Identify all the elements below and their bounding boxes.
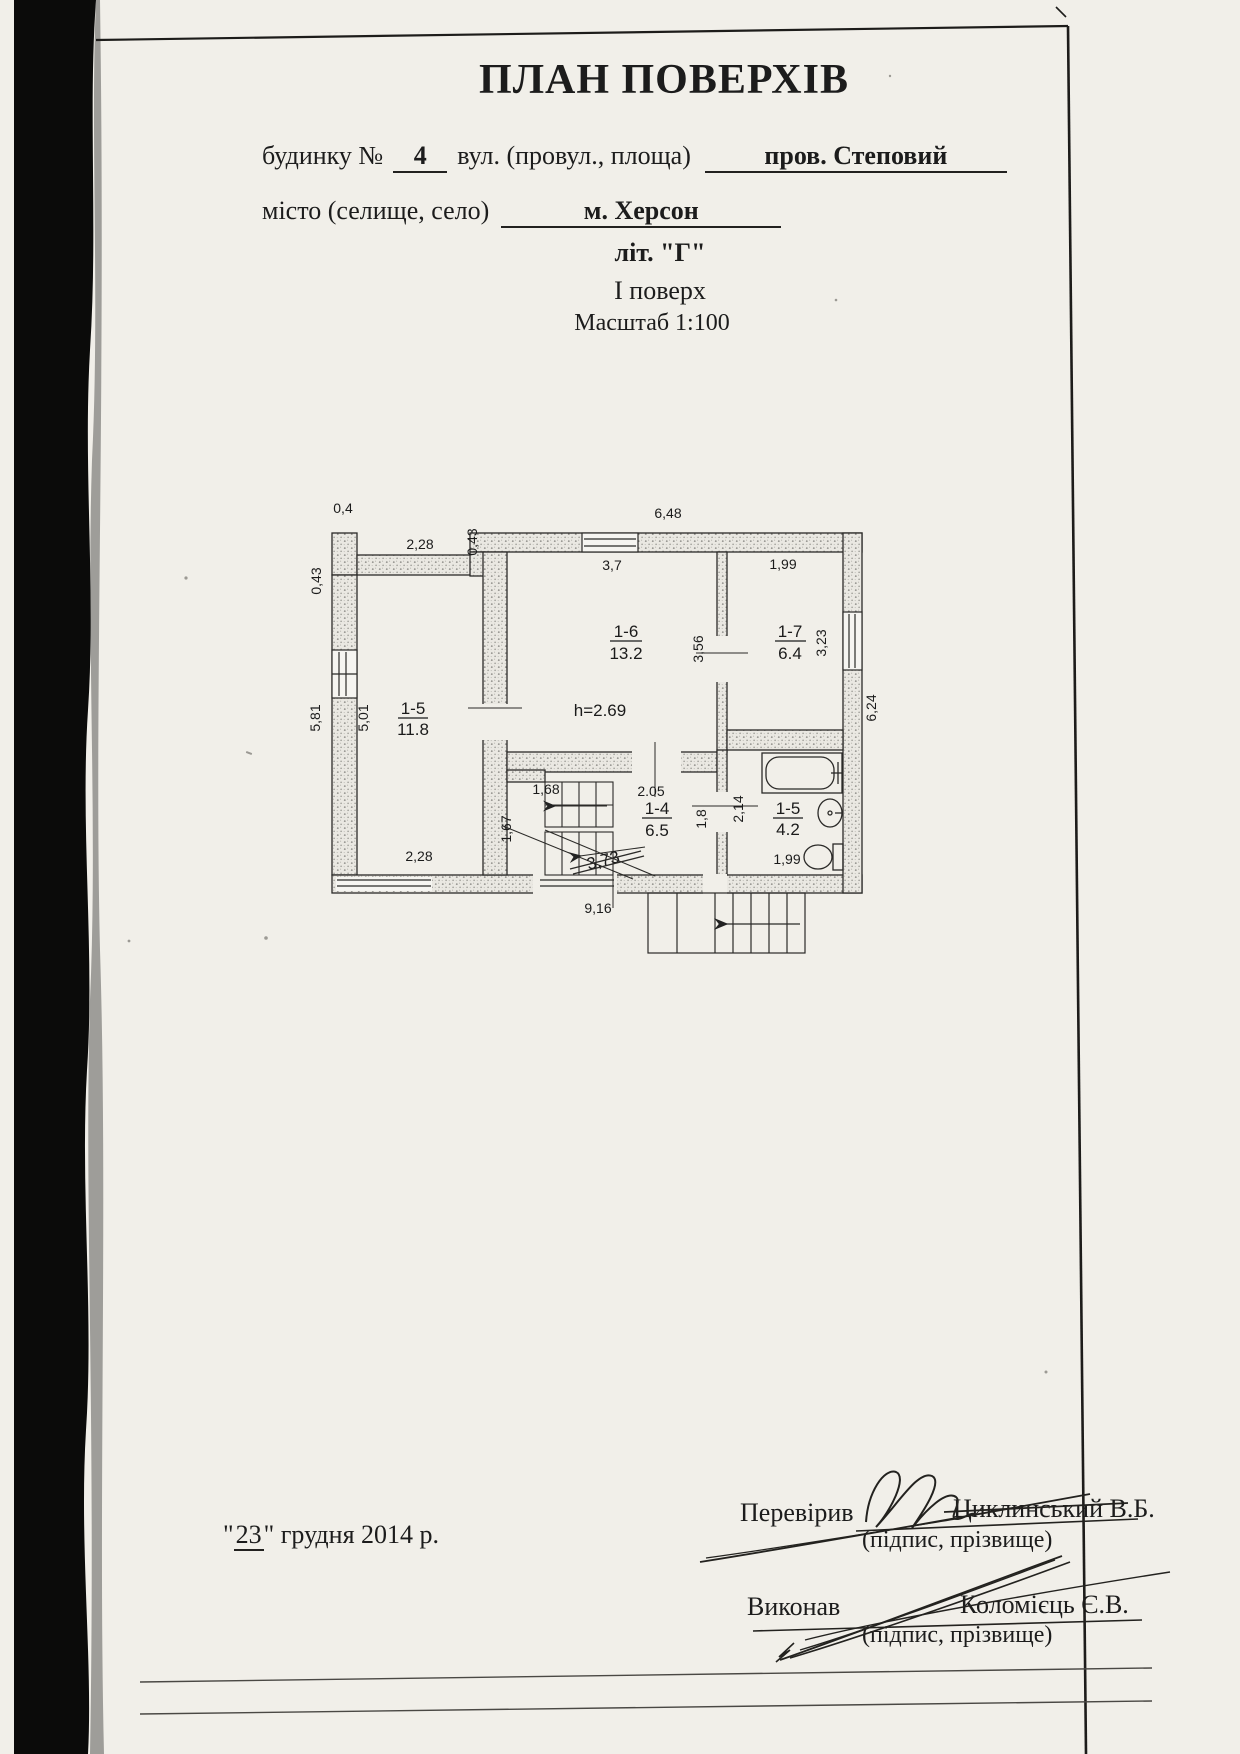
room-17-area: 6.4 bbox=[778, 644, 802, 663]
page-title: ПЛАН ПОВЕРХІВ bbox=[479, 56, 849, 104]
wall-left bbox=[332, 575, 357, 875]
dim-r15-bottom: 2,28 bbox=[405, 848, 432, 864]
dim-bottom-width: 9,16 bbox=[584, 900, 611, 916]
dim-left-wall-upper: 0,43 bbox=[308, 567, 324, 594]
room-15-area: 11.8 bbox=[397, 720, 429, 739]
floor-label: І поверх bbox=[614, 276, 706, 306]
ceiling-height-label: h=2.69 bbox=[574, 701, 626, 720]
bathtub-icon bbox=[762, 753, 842, 793]
date-line: "23" грудня 2014 р. bbox=[223, 1520, 439, 1550]
dim-stair-width: 1,68 bbox=[532, 781, 559, 797]
scale-label: Масштаб 1:100 bbox=[574, 310, 729, 337]
wall-room16-bottom bbox=[507, 752, 717, 772]
door-15-16 bbox=[482, 704, 508, 740]
dim-bath-width: 1,99 bbox=[773, 851, 800, 867]
dim-r16-depth: 3,56 bbox=[690, 635, 706, 662]
room-17-id: 1-7 bbox=[778, 622, 803, 641]
dim-hall-width: 2.05 bbox=[637, 783, 664, 799]
scanner-band-smudge bbox=[88, 0, 104, 1754]
room-14-area: 6.5 bbox=[645, 821, 669, 840]
window-bottom-left bbox=[336, 877, 432, 891]
dim-top-offset: 0,43 bbox=[464, 528, 480, 555]
form-line-city: місто (селище, село) м. Херсон bbox=[262, 196, 781, 228]
window-left bbox=[332, 650, 357, 698]
door-hall-bath bbox=[716, 792, 728, 832]
checked-name: Циклинський В.Б. bbox=[953, 1494, 1155, 1524]
dim-top-width: 6,48 bbox=[654, 505, 681, 521]
room-16-id: 1-6 bbox=[614, 622, 639, 641]
window-right bbox=[843, 612, 862, 670]
liter-label: літ. "Г" bbox=[614, 238, 705, 268]
form-line-house: будинку № 4 вул. (провул., площа) пров. … bbox=[262, 141, 1007, 173]
gap-bottom bbox=[703, 874, 727, 894]
made-caption: (підпис, прізвище) bbox=[862, 1622, 1052, 1649]
dim-left-outer: 5,81 bbox=[307, 704, 323, 731]
interior-stairs bbox=[503, 782, 655, 879]
street-label: вул. (провул., площа) bbox=[457, 141, 691, 171]
wall-left-top bbox=[357, 555, 483, 575]
dim-pier-width: 0,4 bbox=[333, 500, 353, 516]
toilet-icon bbox=[804, 844, 843, 870]
door-16-17 bbox=[716, 636, 728, 682]
date-rest: грудня 2014 р. bbox=[274, 1520, 439, 1549]
dim-r17-window: 3,23 bbox=[813, 629, 829, 656]
city-label: місто (селище, село) bbox=[262, 196, 489, 226]
house-number-value: 4 bbox=[393, 141, 447, 173]
dim-stair-depth: 1,67 bbox=[498, 815, 514, 842]
checked-caption: (підпис, прізвище) bbox=[862, 1527, 1052, 1554]
stair-note-crossed-out: 3,73 bbox=[570, 847, 644, 874]
dim-hall-depth: 1,8 bbox=[693, 809, 709, 829]
checked-label: Перевірив bbox=[740, 1498, 854, 1528]
date-close-quote: " bbox=[264, 1520, 275, 1549]
dim-left-top-wall: 2,28 bbox=[406, 536, 433, 552]
window-top bbox=[582, 533, 638, 552]
room-15b-id: 1-5 bbox=[776, 799, 801, 818]
house-number-label: будинку № bbox=[262, 141, 383, 171]
wall-top bbox=[470, 533, 862, 552]
date-open-quote: " bbox=[223, 1520, 234, 1549]
room-15b-area: 4.2 bbox=[776, 820, 800, 839]
dim-right-outer: 6,24 bbox=[863, 694, 879, 721]
frame-top bbox=[96, 26, 1068, 40]
date-day: 23 bbox=[234, 1520, 264, 1551]
room-15-id: 1-5 bbox=[401, 699, 426, 718]
door-exit bbox=[533, 874, 617, 894]
corner-tick bbox=[1056, 7, 1066, 17]
city-value: м. Херсон bbox=[501, 196, 781, 228]
floor-plan-drawing: 3,73 bbox=[290, 430, 910, 970]
made-name: Коломієць Є.В. bbox=[960, 1590, 1129, 1620]
room-14-id: 1-4 bbox=[645, 799, 670, 818]
scanned-floor-plan-page: ПЛАН ПОВЕРХІВ будинку № 4 вул. (провул.,… bbox=[0, 0, 1240, 1754]
dim-top-window: 3,7 bbox=[602, 557, 622, 573]
wall-right bbox=[843, 533, 862, 893]
dim-r17-width: 1,99 bbox=[769, 556, 796, 572]
sink-icon bbox=[818, 799, 842, 827]
wall-pier-top-left bbox=[332, 533, 357, 575]
door-16-hall bbox=[632, 751, 681, 773]
made-label: Виконав bbox=[747, 1592, 840, 1622]
bottom-ruled-lines bbox=[140, 1668, 1152, 1714]
dim-left-inner: 5,01 bbox=[355, 704, 371, 731]
dim-bath-depth: 2,14 bbox=[730, 795, 746, 822]
wall-bath-top bbox=[727, 730, 843, 750]
street-value: пров. Степовий bbox=[705, 141, 1007, 173]
scanner-edge-band bbox=[14, 0, 96, 1754]
exterior-stairs bbox=[648, 893, 805, 953]
room-16-area: 13.2 bbox=[609, 644, 642, 663]
